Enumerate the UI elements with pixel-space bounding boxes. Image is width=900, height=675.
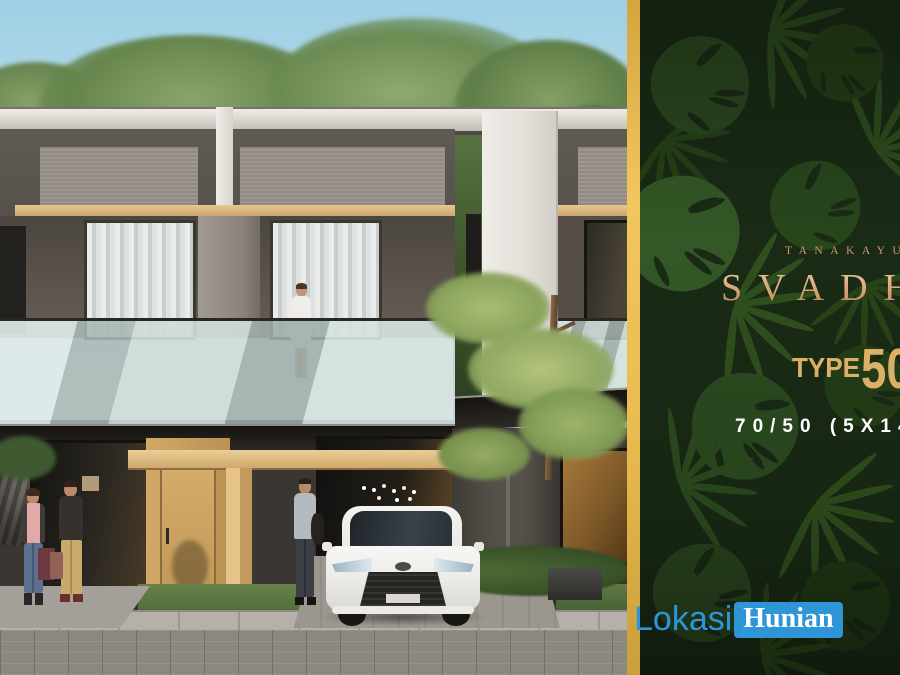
gold-divider: [627, 0, 640, 675]
tree-foliage: [438, 428, 530, 480]
paver-road: [0, 630, 627, 675]
info-panel: TANAKAYU SVADHI TYPE 50 70/50 (5X14): [640, 0, 900, 675]
person-man-2: [288, 480, 324, 612]
type-label: TYPE: [792, 352, 860, 384]
unit-dimensions: 70/50 (5X14): [735, 416, 900, 438]
townhouse-photo: [0, 0, 627, 675]
watermark: Lokasi Hunian: [634, 600, 843, 639]
type-number: 50: [861, 336, 900, 402]
wood-soffit: [15, 205, 455, 216]
planter-box: [548, 568, 602, 600]
pergola-beam: [128, 450, 460, 470]
concrete-panel: [578, 147, 627, 207]
watermark-badge: Hunian: [734, 602, 842, 638]
watermark-suffix: Hunian: [743, 603, 833, 634]
brand-label: TANAKAYU: [785, 245, 900, 257]
white-column: [216, 107, 233, 207]
cluster-name: SVADHI: [721, 266, 900, 310]
watermark-prefix: Lokasi: [634, 600, 732, 639]
person-man: [52, 482, 90, 610]
car: [326, 506, 480, 624]
chandelier: [362, 486, 366, 490]
door-handle: [166, 528, 169, 544]
concrete-panel: [40, 147, 198, 207]
flyer: TANAKAYU SVADHI TYPE 50 70/50 (5X14) Lok…: [0, 0, 900, 675]
wood-soffit: [558, 205, 627, 216]
tree-foliage: [518, 388, 627, 460]
concrete-panel: [240, 147, 445, 207]
